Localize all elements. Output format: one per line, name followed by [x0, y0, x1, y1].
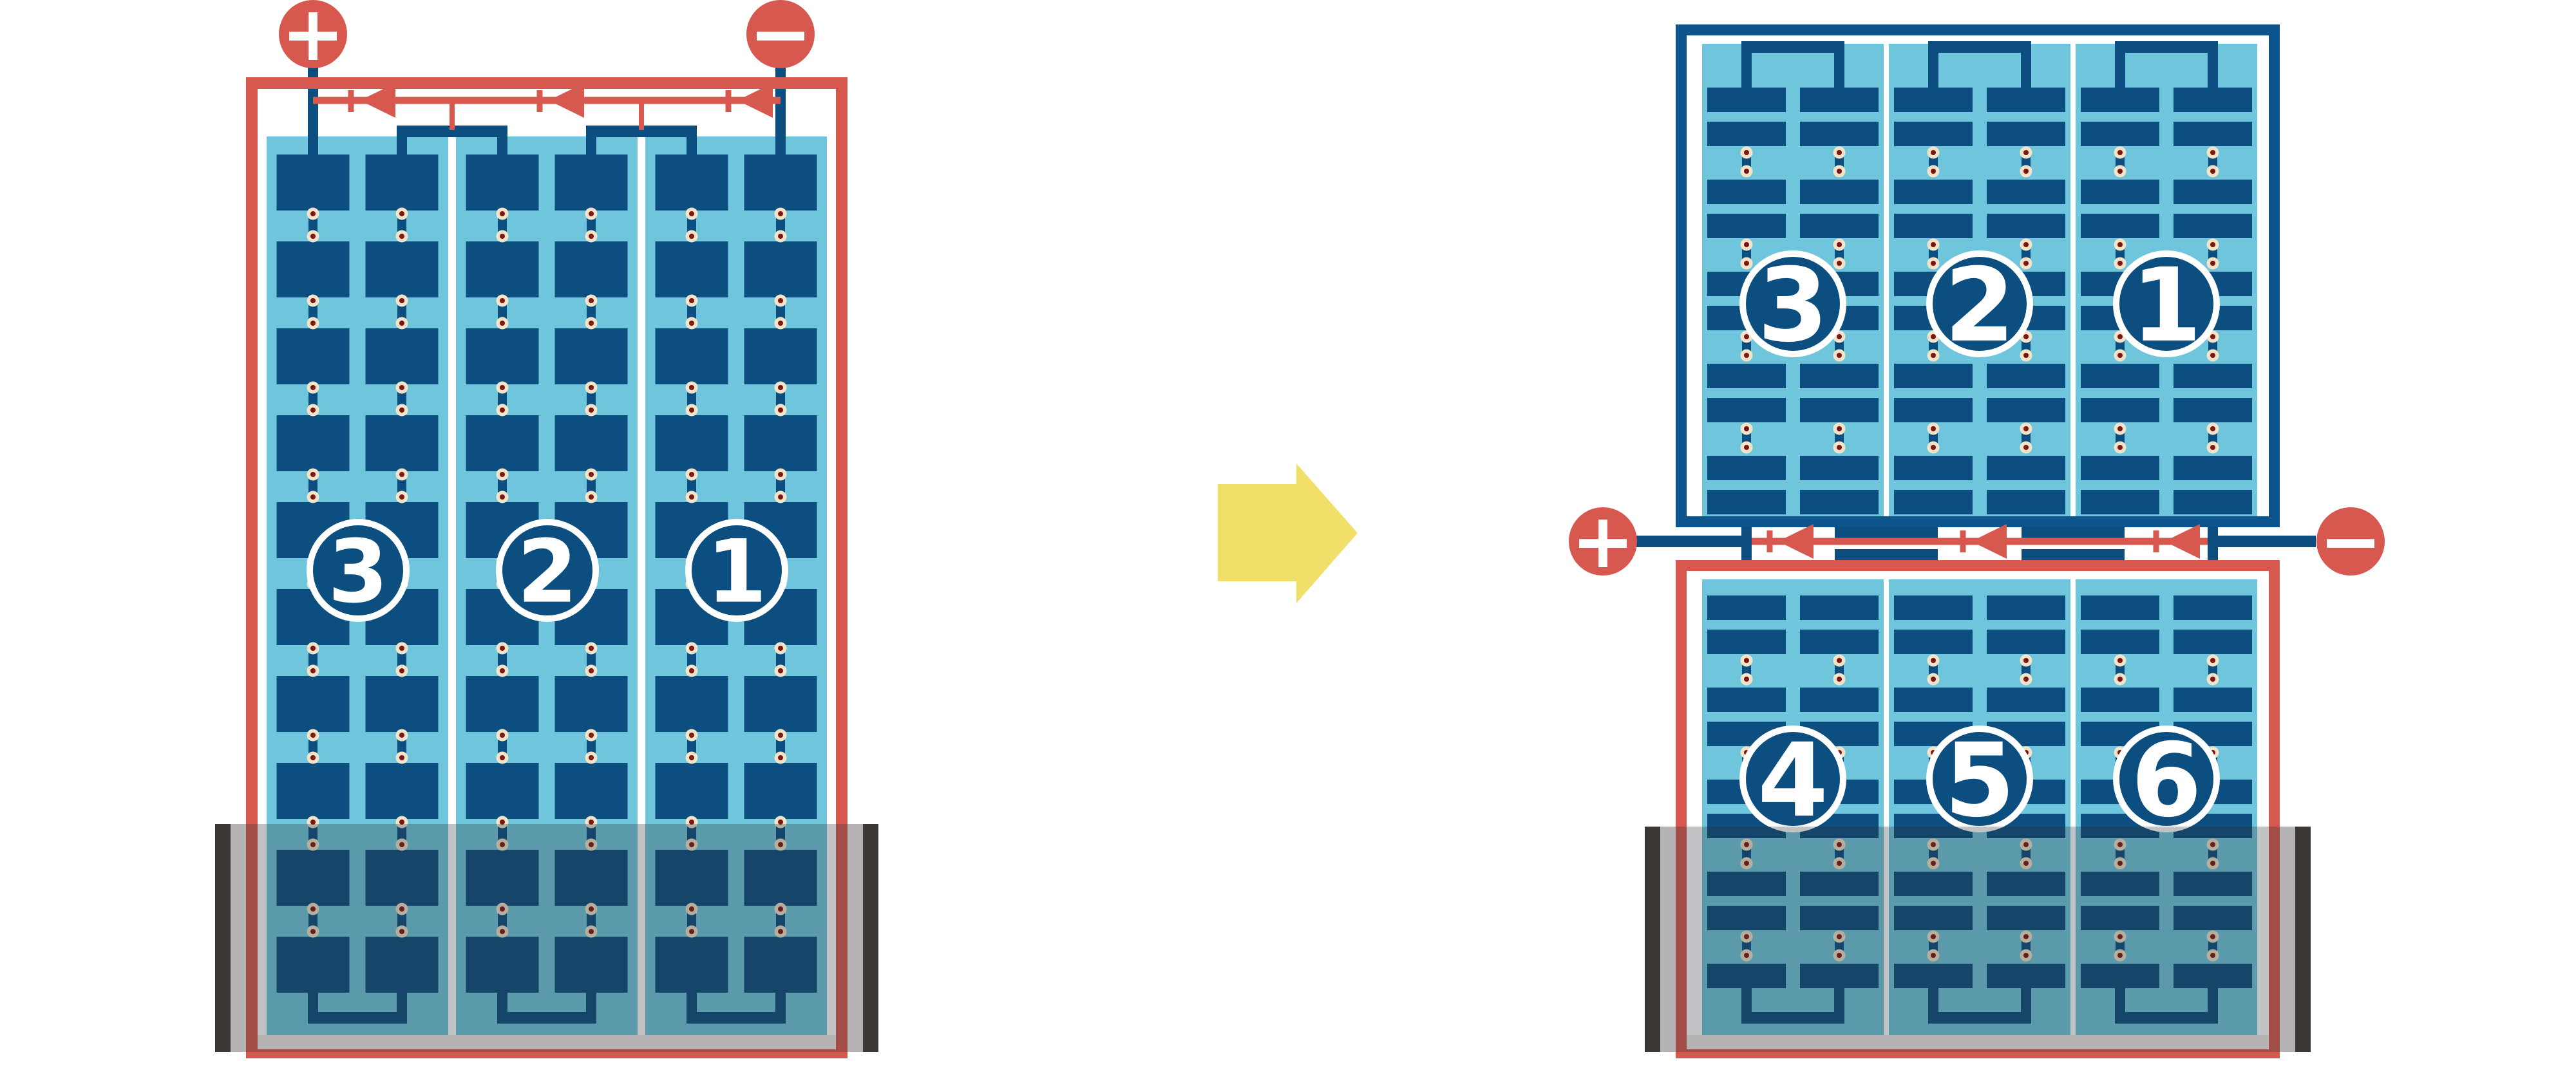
- rivet-dot-center: [500, 472, 505, 477]
- cell: [1987, 364, 2065, 388]
- rivet-dot-center: [310, 321, 316, 326]
- rivet-dot-center: [2117, 677, 2123, 682]
- rivet-dot-center: [589, 820, 594, 825]
- rivet-dot-center: [1837, 445, 1842, 450]
- cell: [1987, 490, 2065, 514]
- cell: [2081, 180, 2159, 204]
- rivet-dot-center: [1931, 334, 1936, 339]
- cell: [1707, 214, 1786, 238]
- rivet-dot-center: [500, 755, 505, 760]
- module-number: 3: [1757, 247, 1828, 365]
- cell: [1707, 456, 1786, 480]
- cell: [466, 328, 539, 384]
- rivet-dot-center: [589, 321, 594, 326]
- cell: [2173, 688, 2252, 712]
- rivet-dot-center: [2023, 242, 2029, 247]
- bridge-bar: [1741, 41, 1844, 53]
- module-number: 1: [706, 521, 767, 623]
- lower-link-tab: [1835, 549, 1938, 561]
- module-number: 4: [1757, 722, 1828, 840]
- bridge-leg: [1834, 53, 1844, 89]
- negative-terminal-sign: −: [749, 0, 813, 78]
- rivet-dot-center: [778, 298, 783, 303]
- cell: [555, 328, 628, 384]
- rivet-dot-center: [500, 668, 505, 673]
- cell: [2173, 214, 2252, 238]
- rivet-dot-center: [1837, 353, 1842, 358]
- rivet-dot-center: [500, 211, 505, 216]
- cell: [1800, 122, 1879, 146]
- cell: [656, 676, 728, 732]
- cell: [2173, 456, 2252, 480]
- cell: [1894, 364, 1973, 388]
- rivet-dot-center: [500, 646, 505, 651]
- cell: [1894, 180, 1973, 204]
- rivet-dot-center: [689, 494, 694, 500]
- cell: [1800, 364, 1879, 388]
- cell: [656, 241, 728, 297]
- cell: [2081, 364, 2159, 388]
- cell: [2081, 214, 2159, 238]
- rivet-dot-center: [1931, 658, 1936, 663]
- cell: [2173, 364, 2252, 388]
- rivet-dot-center: [2023, 677, 2029, 682]
- rivet-dot-center: [2210, 242, 2215, 247]
- rivet-dot-center: [689, 755, 694, 760]
- rivet-dot-center: [399, 733, 404, 738]
- rivet-dot-center: [589, 408, 594, 413]
- transform-arrow: [1218, 464, 1358, 603]
- current-arrow-icon: [1778, 524, 1814, 559]
- cell: [366, 155, 439, 211]
- lower-link-tab: [2022, 549, 2125, 561]
- rivet-dot-center: [500, 733, 505, 738]
- rivet-dot-center: [2023, 169, 2029, 174]
- positive-terminal-stem: [1636, 536, 1741, 547]
- cell: [1707, 122, 1786, 146]
- cell: [656, 415, 728, 471]
- rivet-dot-center: [2117, 426, 2123, 431]
- cell: [277, 241, 350, 297]
- rivet-dot-center: [310, 733, 316, 738]
- busbar-tick: [726, 90, 732, 112]
- cell: [744, 241, 817, 297]
- cell: [1987, 214, 2065, 238]
- rivet-dot-center: [2023, 261, 2029, 266]
- module-number: 2: [517, 521, 578, 623]
- cell: [466, 763, 539, 819]
- rivet-dot-center: [399, 668, 404, 673]
- rivet-dot-center: [778, 668, 783, 673]
- rivet-dot-center: [589, 494, 594, 500]
- rivet-dot-center: [2210, 677, 2215, 682]
- bridge-leg: [2021, 53, 2031, 89]
- cell: [366, 415, 439, 471]
- cell: [277, 763, 350, 819]
- module-number: 2: [1944, 247, 2015, 365]
- rivet-dot-center: [589, 472, 594, 477]
- cell: [1894, 456, 1973, 480]
- rivet-dot-center: [310, 494, 316, 500]
- rivet-dot-center: [2210, 169, 2215, 174]
- battery-pack-after-top: 321: [1681, 30, 2275, 522]
- cell: [366, 241, 439, 297]
- cell: [2173, 180, 2252, 204]
- rivet-dot-center: [1744, 426, 1749, 431]
- cell: [744, 328, 817, 384]
- cell: [466, 241, 539, 297]
- rivet-dot-center: [2117, 150, 2123, 155]
- cell: [1987, 456, 2065, 480]
- rivet-dot-center: [778, 755, 783, 760]
- bridge-bar: [2115, 41, 2218, 53]
- rivet-dot-center: [778, 472, 783, 477]
- cell: [1894, 630, 1973, 654]
- rivet-dot-center: [689, 234, 694, 239]
- rivet-dot-center: [1837, 150, 1842, 155]
- cell: [366, 763, 439, 819]
- rivet-dot-center: [500, 385, 505, 390]
- cell: [2081, 88, 2159, 112]
- cell: [277, 155, 350, 211]
- rivet-dot-center: [689, 408, 694, 413]
- rivet-dot-center: [500, 234, 505, 239]
- tray-shadow: [1645, 827, 2311, 1052]
- current-arrow-icon: [2164, 524, 2200, 559]
- cell: [2173, 595, 2252, 620]
- rivet-dot-center: [778, 494, 783, 500]
- cell: [656, 155, 728, 211]
- rivet-dot-center: [689, 646, 694, 651]
- rivet-dot-center: [2023, 658, 2029, 663]
- rivet-dot-center: [1837, 169, 1842, 174]
- cell: [1800, 88, 1879, 112]
- cell: [1894, 490, 1973, 514]
- busbar-drop-link: [450, 102, 455, 130]
- tray-side-bar: [2295, 827, 2311, 1052]
- cell: [1894, 398, 1973, 422]
- cell: [277, 676, 350, 732]
- current-arrow-icon: [1971, 524, 2007, 559]
- right-arrow-icon: [1218, 464, 1358, 603]
- bridge-leg: [2208, 53, 2218, 89]
- rivet-dot-center: [2210, 426, 2215, 431]
- cell: [1987, 630, 2065, 654]
- rivet-dot-center: [778, 234, 783, 239]
- cell: [1707, 490, 1786, 514]
- upper-link-tab: [2022, 527, 2125, 539]
- rivet-dot-center: [310, 298, 316, 303]
- cell: [1800, 595, 1879, 620]
- rivet-dot-center: [2117, 334, 2123, 339]
- busbar-drop-link: [639, 102, 644, 130]
- tray-wall: [848, 824, 863, 1052]
- positive-terminal-sign: +: [281, 0, 345, 78]
- cell: [1800, 398, 1879, 422]
- rivet-dot-center: [310, 668, 316, 673]
- rivet-dot-center: [689, 321, 694, 326]
- rivet-dot-center: [589, 234, 594, 239]
- cell: [656, 763, 728, 819]
- tray-wall-bottom: [258, 1035, 836, 1049]
- cell: [277, 328, 350, 384]
- module-number: 5: [1944, 722, 2015, 840]
- tray-wall-bottom: [1687, 1035, 2269, 1049]
- cell: [466, 155, 539, 211]
- cell: [2081, 630, 2159, 654]
- bridge-bar: [1928, 41, 2031, 53]
- rivet-dot-center: [589, 668, 594, 673]
- rivet-dot-center: [2210, 445, 2215, 450]
- rivet-dot-center: [1744, 150, 1749, 155]
- rivet-dot-center: [399, 408, 404, 413]
- cell: [1987, 88, 2065, 112]
- bridge-leg: [1928, 53, 1938, 89]
- rivet-dot-center: [1837, 261, 1842, 266]
- rivet-dot-center: [1931, 261, 1936, 266]
- cell: [466, 415, 539, 471]
- rivet-dot-center: [778, 321, 783, 326]
- rivet-dot-center: [689, 820, 694, 825]
- positive-terminal-sign: +: [1571, 496, 1635, 585]
- rivet-dot-center: [2210, 334, 2215, 339]
- rivet-dot-center: [310, 472, 316, 477]
- cell: [1800, 180, 1879, 204]
- rivet-dot-center: [778, 211, 783, 216]
- rivet-dot-center: [399, 385, 404, 390]
- cell: [1707, 88, 1786, 112]
- rivet-dot-center: [778, 820, 783, 825]
- rivet-dot-center: [1931, 445, 1936, 450]
- bridge-leg: [1741, 53, 1752, 89]
- busbar-tick: [1767, 530, 1773, 552]
- mounting-tray-right: [1645, 827, 2311, 1052]
- cell: [1800, 630, 1879, 654]
- cell: [555, 241, 628, 297]
- rivet-dot-center: [1744, 261, 1749, 266]
- cell: [1894, 122, 1973, 146]
- cell: [656, 328, 728, 384]
- rivet-dot-center: [2117, 261, 2123, 266]
- cell: [744, 415, 817, 471]
- rivet-dot-center: [1837, 658, 1842, 663]
- tray-side-bar: [863, 824, 878, 1052]
- rivet-dot-center: [778, 646, 783, 651]
- busbar-tick: [537, 90, 543, 112]
- rivet-dot-center: [399, 472, 404, 477]
- rivet-dot-center: [2023, 353, 2029, 358]
- cell: [2081, 490, 2159, 514]
- cell: [744, 155, 817, 211]
- cell: [1707, 398, 1786, 422]
- busbar-tick: [348, 90, 354, 112]
- negative-terminal-stem: [2218, 536, 2316, 547]
- rivet-dot-center: [2023, 150, 2029, 155]
- battery-reconfiguration-diagram: +−321 321 +−456: [0, 0, 2576, 1068]
- rivet-dot-center: [689, 385, 694, 390]
- module-number: 6: [2131, 722, 2202, 840]
- cell: [1707, 595, 1786, 620]
- cell: [1987, 688, 2065, 712]
- cell: [2081, 122, 2159, 146]
- cell: [2173, 630, 2252, 654]
- rivet-dot-center: [2023, 445, 2029, 450]
- rivet-dot-center: [589, 646, 594, 651]
- rivet-dot-center: [2117, 658, 2123, 663]
- bridge-leg: [2115, 53, 2125, 89]
- rivet-dot-center: [500, 820, 505, 825]
- rivet-dot-center: [1931, 677, 1936, 682]
- cell: [1987, 180, 2065, 204]
- rivet-dot-center: [2210, 353, 2215, 358]
- rivet-dot-center: [1744, 445, 1749, 450]
- rivet-dot-center: [1744, 334, 1749, 339]
- rivet-dot-center: [1931, 150, 1936, 155]
- cell: [2173, 398, 2252, 422]
- rivet-dot-center: [2210, 261, 2215, 266]
- cell: [744, 676, 817, 732]
- cell: [1800, 456, 1879, 480]
- rivet-dot-center: [500, 321, 505, 326]
- cell: [1707, 630, 1786, 654]
- rivet-dot-center: [310, 408, 316, 413]
- rivet-dot-center: [778, 408, 783, 413]
- busbar-tick: [2154, 530, 2159, 552]
- negative-terminal-sign: −: [2319, 496, 2383, 585]
- rivet-dot-center: [399, 321, 404, 326]
- cell: [2081, 456, 2159, 480]
- cell: [1707, 688, 1786, 712]
- rivet-dot-center: [1837, 677, 1842, 682]
- rivet-dot-center: [589, 755, 594, 760]
- rivet-dot-center: [500, 408, 505, 413]
- rivet-dot-center: [399, 234, 404, 239]
- rivet-dot-center: [399, 211, 404, 216]
- rivet-dot-center: [1744, 353, 1749, 358]
- rivet-dot-center: [310, 211, 316, 216]
- cell: [2081, 595, 2159, 620]
- rivet-dot-center: [1744, 677, 1749, 682]
- rivet-dot-center: [689, 472, 694, 477]
- tray-wall: [2280, 827, 2295, 1052]
- cell: [2173, 490, 2252, 514]
- cell: [1894, 595, 1973, 620]
- module-number: 1: [2131, 247, 2202, 365]
- rivet-dot-center: [2210, 150, 2215, 155]
- cell: [1800, 214, 1879, 238]
- rivet-dot-center: [2023, 334, 2029, 339]
- cell: [744, 763, 817, 819]
- rivet-dot-center: [310, 646, 316, 651]
- rivet-dot-center: [1837, 334, 1842, 339]
- rivet-dot-center: [310, 385, 316, 390]
- rivet-dot-center: [500, 494, 505, 500]
- rivet-dot-center: [2117, 353, 2123, 358]
- rivet-dot-center: [1837, 242, 1842, 247]
- upper-link-tab: [1835, 527, 1938, 539]
- rivet-dot-center: [399, 646, 404, 651]
- rivet-dot-center: [1931, 426, 1936, 431]
- rivet-dot-center: [689, 298, 694, 303]
- cell: [1800, 490, 1879, 514]
- rivet-dot-center: [589, 298, 594, 303]
- rivet-dot-center: [778, 385, 783, 390]
- rivet-dot-center: [1744, 658, 1749, 663]
- cell: [1987, 122, 2065, 146]
- cell: [1987, 398, 2065, 422]
- rivet-dot-center: [1931, 242, 1936, 247]
- cell: [2081, 398, 2159, 422]
- rivet-dot-center: [689, 668, 694, 673]
- negative-terminal-post: [2208, 527, 2218, 561]
- cell: [277, 415, 350, 471]
- rivet-dot-center: [2117, 445, 2123, 450]
- cell: [2173, 88, 2252, 112]
- rivet-dot-center: [399, 820, 404, 825]
- rivet-dot-center: [1837, 426, 1842, 431]
- rivet-dot-center: [589, 385, 594, 390]
- rivet-dot-center: [500, 298, 505, 303]
- diagram-stage: +−321 321 +−456: [0, 0, 2576, 1068]
- rivet-dot-center: [399, 494, 404, 500]
- rivet-dot-center: [778, 733, 783, 738]
- positive-terminal-post: [1741, 527, 1752, 561]
- rivet-dot-center: [310, 755, 316, 760]
- cell: [1707, 180, 1786, 204]
- battery-pack-before: +−321: [215, 0, 878, 1053]
- rivet-dot-center: [689, 733, 694, 738]
- rivet-dot-center: [2023, 426, 2029, 431]
- rivet-dot-center: [1744, 169, 1749, 174]
- tray-shadow: [215, 824, 878, 1052]
- tray-wall: [1660, 827, 1676, 1052]
- cell: [366, 676, 439, 732]
- cell: [555, 415, 628, 471]
- rivet-dot-center: [1931, 169, 1936, 174]
- rivet-dot-center: [310, 234, 316, 239]
- cell: [1894, 214, 1973, 238]
- rivet-dot-center: [2117, 242, 2123, 247]
- rivet-dot-center: [689, 211, 694, 216]
- rivet-dot-center: [589, 211, 594, 216]
- module-number: 3: [328, 521, 388, 623]
- rivet-dot-center: [310, 820, 316, 825]
- busbar-tick: [1960, 530, 1966, 552]
- rivet-dot-center: [399, 298, 404, 303]
- rivet-dot-center: [1744, 242, 1749, 247]
- rivet-dot-center: [2210, 658, 2215, 663]
- tray-wall: [231, 824, 246, 1052]
- rivet-dot-center: [1931, 353, 1936, 358]
- cell: [1987, 595, 2065, 620]
- cell: [466, 676, 539, 732]
- cell: [1800, 688, 1879, 712]
- rivet-dot-center: [2117, 169, 2123, 174]
- cell: [555, 763, 628, 819]
- cell: [1707, 364, 1786, 388]
- cell: [2081, 688, 2159, 712]
- cell: [1894, 88, 1973, 112]
- cell: [555, 676, 628, 732]
- tray-side-bar: [215, 824, 231, 1052]
- cell: [2173, 122, 2252, 146]
- rivet-dot-center: [589, 733, 594, 738]
- cell: [366, 328, 439, 384]
- cell: [1894, 688, 1973, 712]
- rivet-dot-center: [399, 755, 404, 760]
- tray-side-bar: [1645, 827, 1660, 1052]
- cell: [555, 155, 628, 211]
